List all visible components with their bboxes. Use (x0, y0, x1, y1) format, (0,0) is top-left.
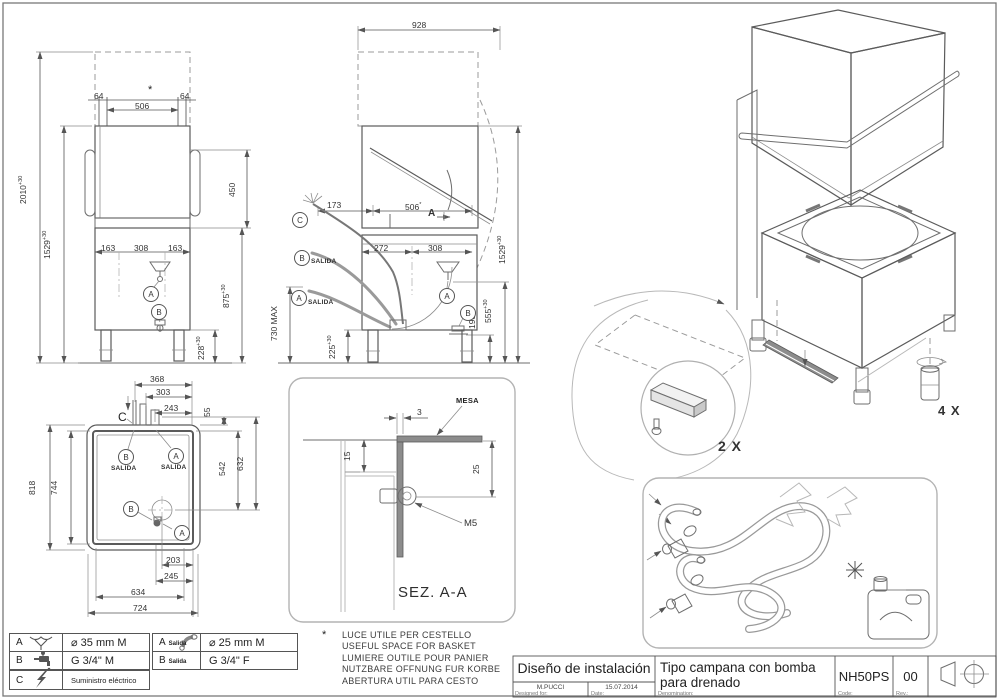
dim-counter-height: 875+30 (219, 284, 231, 308)
mesa-label: MESA (456, 396, 479, 405)
opening-rim-outer (762, 190, 955, 278)
denomination-line1: Tipo campana con bomba (660, 660, 816, 675)
legend-key-a-out: ASalida (153, 634, 201, 651)
handle-right (190, 150, 200, 216)
note-marker-bottom: * (322, 629, 326, 641)
dim-368: 368 (150, 374, 164, 384)
dim-machine-height-side: 1529+30 (495, 236, 507, 264)
dim-3: 3 (417, 407, 422, 417)
plan-view-drawing (46, 381, 260, 617)
callout-c-plan: C (118, 410, 127, 424)
dim-total-depth: 928 (412, 20, 426, 30)
dim-744: 744 (49, 481, 59, 495)
note-line: LUMIERE OUTILE POUR PANIER (342, 653, 500, 664)
bracket-quantity: 2 X (718, 438, 742, 454)
callout-c-side: C (292, 212, 308, 228)
legend-table-connections: A ⌀ 35 mm M B G 3/4" M (9, 633, 150, 670)
salida-label-a: SALIDA (308, 299, 333, 306)
screw-label: M5 (464, 519, 477, 529)
dim-right-offset: 163 (168, 243, 182, 253)
hood-top-face (752, 10, 945, 53)
drawing-line-art (0, 0, 999, 700)
dim-total-height: 2010+30 (16, 176, 28, 204)
dim-634: 634 (131, 587, 145, 597)
dim-leg-height: 228+30 (194, 336, 206, 360)
hood-raised-outline (95, 52, 190, 126)
air-gap-funnel-side (437, 262, 459, 272)
detail-arrow (594, 291, 724, 306)
date-label: Date: (591, 691, 604, 697)
drain-hose (309, 291, 390, 327)
drain-tap (155, 320, 165, 325)
callout-b2-side: B (460, 305, 476, 321)
dim-15: 15 (342, 452, 352, 461)
angle-bracket-vertical (397, 442, 403, 557)
callout-a2-side: A (439, 288, 455, 304)
legend-value-drain-out: ⌀ 25 mm M (201, 636, 297, 649)
drawing-title: Diseño de instalación (513, 660, 655, 676)
dim-203: 203 (166, 555, 180, 565)
rev-value: 00 (893, 669, 928, 684)
dim-818: 818 (27, 481, 37, 495)
legend-key-b: B (10, 652, 63, 669)
dim-245: 245 (164, 571, 178, 581)
note-line: NUTZBARE OFFNUNG FUR KORBE (342, 664, 500, 675)
note-line: USEFUL SPACE FOR BASKET (342, 641, 500, 652)
leg-left (101, 330, 111, 361)
dim-left-offset: 163 (101, 243, 115, 253)
dim-25: 25 (471, 465, 481, 474)
callout-b-plan: B (118, 449, 134, 465)
callout-a-plan: A (168, 448, 184, 464)
air-gap-funnel (150, 262, 170, 271)
legend-value-water-out: G 3/4" F (201, 655, 297, 667)
legend-value-water: G 3/4" M (63, 655, 149, 667)
callout-a-front: A (143, 286, 159, 302)
legend-key-b-out: BSalida (153, 652, 201, 669)
dim-center: 308 (134, 243, 148, 253)
denomination-line2: para drenado (660, 675, 740, 690)
salida-label-b: SALIDA (311, 258, 336, 265)
dim-632: 632 (235, 457, 245, 471)
cable-frayed-end (303, 193, 322, 203)
salida-label-a-plan: SALIDA (161, 464, 186, 471)
dim-back-offset: 272 (374, 243, 388, 253)
section-title: SEZ. A-A (398, 584, 468, 601)
note-line: LUCE UTILE PER CESTELLO (342, 630, 500, 641)
back-column (737, 90, 757, 310)
legend-row-electric: C Suministro eléctrico (10, 671, 149, 689)
hood-raised-outline-side (358, 52, 478, 126)
designer-label: Designed for: (515, 691, 548, 697)
dim-funnel-height: 555+30 (481, 299, 493, 323)
code-label: Code: (838, 691, 853, 697)
note-marker: * (148, 84, 152, 96)
adjustable-foot (921, 368, 939, 400)
leg-right (174, 330, 184, 361)
dim-opening-width: 506 (135, 101, 149, 111)
legend-row-drain: A ⌀ 35 mm M (10, 634, 149, 651)
salida-label-b-plan: SALIDA (111, 465, 136, 472)
basket-circle (802, 206, 918, 260)
hood-handle (739, 71, 959, 148)
denomination-label: Denomination: (658, 691, 693, 697)
hood-left-face (752, 27, 851, 205)
callout-a2-plan: A (174, 525, 190, 541)
front-view-drawing (36, 52, 251, 363)
legend-table-outlets: ASalida ⌀ 25 mm M BSalida G 3/4" F (152, 633, 298, 670)
dim-hose-offset: 173 (327, 200, 341, 210)
callout-b2-plan: B (123, 501, 139, 517)
legend-table-electric: C Suministro eléctrico (9, 670, 150, 690)
body-right-face (862, 233, 955, 368)
isometric-view-drawing (572, 10, 959, 481)
angle-bracket-horizontal (397, 436, 482, 442)
date-value: 15.07.2014 (588, 684, 655, 691)
callout-b-front: B (151, 304, 167, 320)
splash-star (846, 561, 864, 579)
dim-frame-height: 225+30 (325, 335, 337, 359)
dim-drain-offset: 308 (428, 243, 442, 253)
hood-side (362, 126, 478, 228)
code-value: NH50PS (835, 669, 893, 684)
water-pipe-stub (140, 404, 146, 425)
designer-value: M.PUCCI (513, 684, 588, 691)
dim-machine-height: 1529+30 (40, 231, 52, 259)
rev-label: Rev.: (896, 691, 908, 697)
legend-row-water: B G 3/4" M (10, 651, 149, 669)
dim-opening-depth: 506* (405, 200, 421, 212)
legend-key-a: A (10, 634, 63, 651)
dim-col-right: 64 (180, 91, 189, 101)
hood-front (95, 126, 190, 218)
multilingual-note: LUCE UTILE PER CESTELLO USEFUL SPACE FOR… (342, 630, 500, 687)
hood-right-face (851, 33, 945, 205)
handle-left (85, 150, 95, 216)
hose-kit-drawing (643, 478, 937, 648)
dim-724: 724 (133, 603, 147, 613)
dim-hose-max: 730 MAX (269, 306, 279, 341)
dim-243: 243 (164, 403, 178, 413)
callout-a-side: A (291, 290, 307, 306)
section-label: A (428, 208, 435, 219)
dim-542: 542 (217, 462, 227, 476)
installation-drawing-sheet: 64 * 64 506 2010+30 1529+30 450 163 308 … (0, 0, 999, 700)
note-line: ABERTURA UTIL PARA CESTO (342, 676, 500, 687)
legend-row-drain-out: ASalida ⌀ 25 mm M (153, 634, 297, 651)
callout-b-side: B (294, 250, 310, 266)
projection-symbol-icon (941, 660, 989, 688)
legend-value-electric: Suministro eléctrico (63, 676, 149, 685)
legend-value-drain: ⌀ 35 mm M (63, 636, 149, 649)
dim-col-left: 64 (94, 91, 103, 101)
dim-hood-stroke: 450 (227, 183, 237, 197)
dim-55: 55 (202, 408, 212, 417)
feet-quantity: 4 X (938, 403, 961, 418)
legend-row-water-out: BSalida G 3/4" F (153, 651, 297, 669)
dim-303: 303 (156, 387, 170, 397)
legend-key-c: C (10, 671, 63, 689)
